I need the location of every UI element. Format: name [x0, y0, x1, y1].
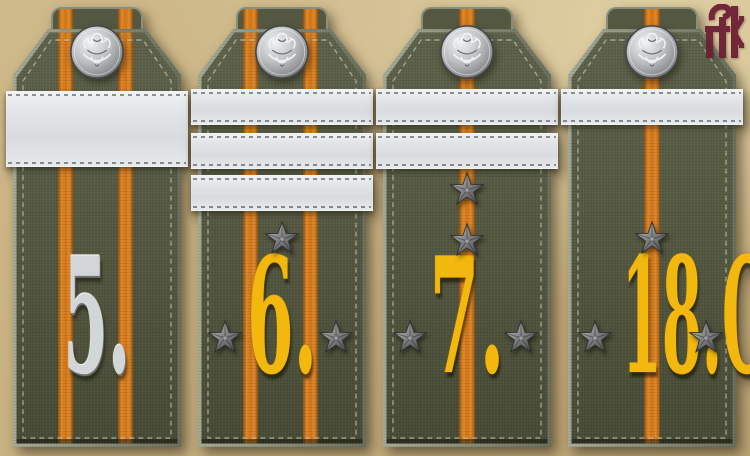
rank-band — [191, 133, 373, 169]
photo-canvas: 5. — [0, 0, 750, 456]
uniform-button — [253, 23, 311, 81]
shoulder-strap: 6. — [198, 7, 366, 447]
rank-band — [191, 175, 373, 211]
rank-star-icon — [687, 319, 725, 357]
uniform-button — [68, 23, 126, 81]
rank-star-icon — [448, 222, 486, 260]
rank-band — [376, 133, 558, 169]
unit-numeral: 18.O. — [622, 236, 682, 396]
rank-band — [191, 89, 373, 125]
rank-star-icon — [633, 220, 671, 258]
unit-numeral: 7. — [429, 236, 505, 396]
rank-band-wide — [6, 91, 188, 167]
collector-monogram-logo — [704, 4, 744, 60]
rank-star-icon — [502, 319, 540, 357]
shoulder-strap: 5. — [13, 7, 181, 447]
shoulder-strap: 7. — [383, 7, 551, 447]
rank-star-icon — [391, 319, 429, 357]
rank-band — [561, 89, 743, 125]
unit-numeral: 5. — [63, 236, 130, 396]
rank-band — [376, 89, 558, 125]
rank-star-icon — [317, 319, 355, 357]
uniform-button — [623, 23, 681, 81]
shoulder-strap: 18.O. — [568, 7, 736, 447]
rank-star-icon — [448, 171, 486, 209]
rank-star-icon — [263, 220, 301, 258]
rank-star-icon — [576, 319, 614, 357]
unit-numeral: 6. — [247, 236, 318, 396]
rank-star-icon — [206, 319, 244, 357]
uniform-button — [438, 23, 496, 81]
